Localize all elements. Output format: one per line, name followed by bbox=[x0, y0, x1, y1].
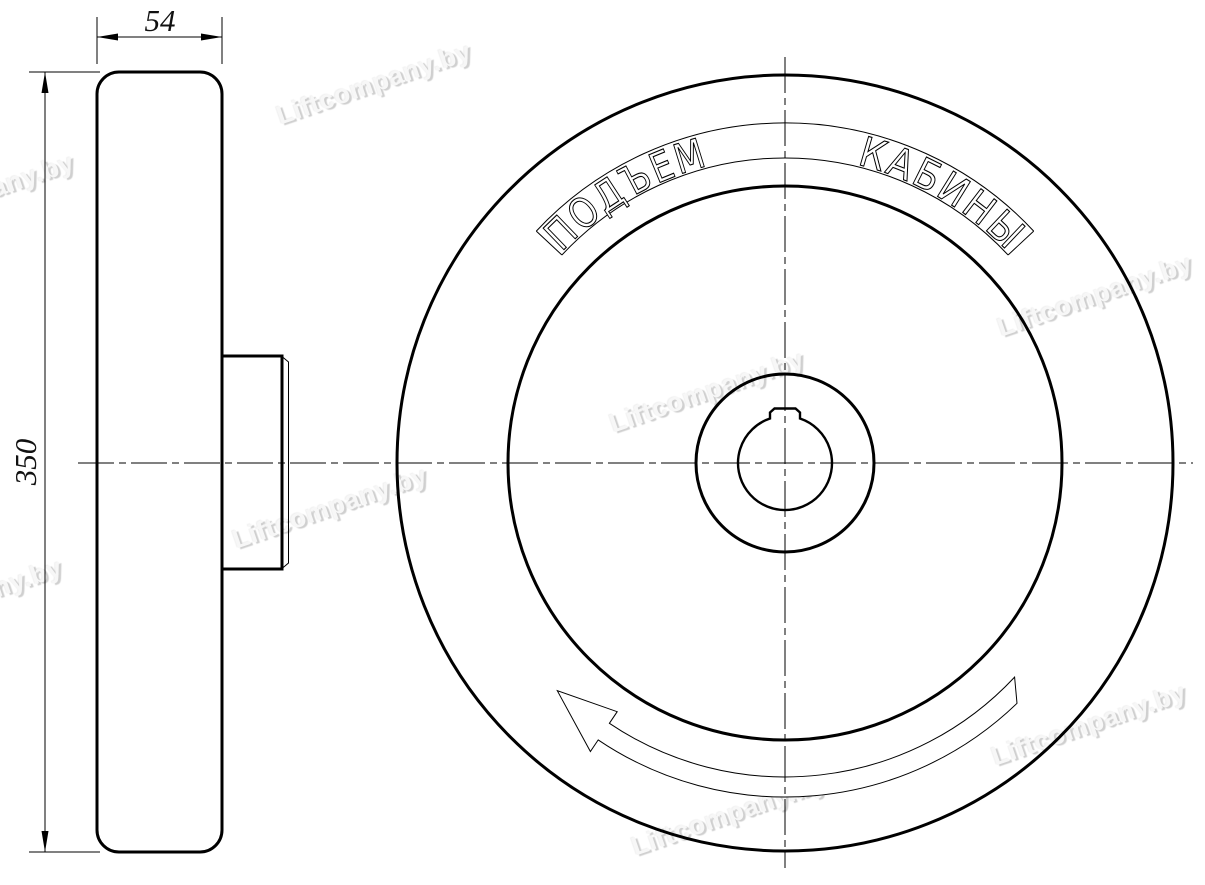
handwheel-drawing: 54 350 ПОДЪЕМ КАБИНЫ bbox=[0, 0, 1205, 885]
dimension-value-rim-width: 54 bbox=[145, 3, 176, 38]
dimension-arrow-bottom-icon bbox=[42, 831, 49, 852]
rotation-direction-arrow-icon bbox=[557, 677, 1017, 797]
dimension-rim-width: 54 bbox=[97, 3, 222, 64]
side-view-rim bbox=[97, 72, 222, 852]
technical-drawing-canvas: Liftcompany.by Liftcompany.by Liftcompan… bbox=[0, 0, 1205, 885]
engraved-word-kabiny: КАБИНЫ bbox=[854, 128, 1035, 260]
dimension-outer-diameter: 350 bbox=[8, 72, 100, 852]
dimension-arrow-right-icon bbox=[201, 34, 222, 41]
dimension-arrow-left-icon bbox=[97, 34, 118, 41]
engraved-word-podem: ПОДЪЕМ bbox=[535, 129, 713, 260]
dimension-arrow-top-icon bbox=[42, 72, 49, 93]
dimension-value-outer-diameter: 350 bbox=[8, 438, 43, 486]
